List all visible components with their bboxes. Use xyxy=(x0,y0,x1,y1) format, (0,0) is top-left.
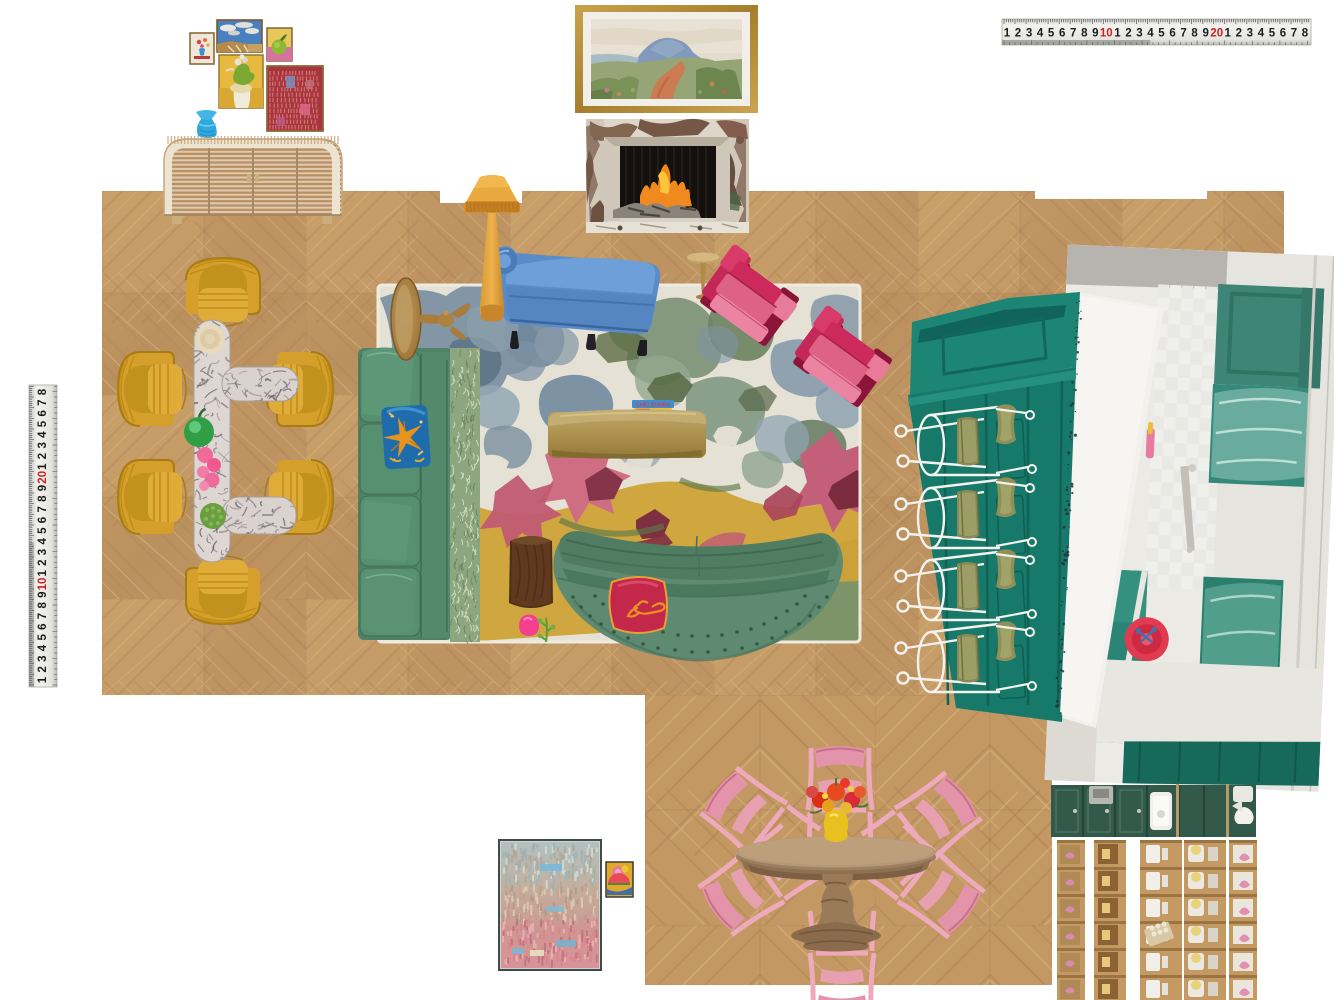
svg-text:9: 9 xyxy=(37,591,49,597)
svg-text:7: 7 xyxy=(37,613,49,619)
svg-text:6: 6 xyxy=(1280,28,1286,40)
svg-text:2: 2 xyxy=(37,559,49,565)
svg-text:5: 5 xyxy=(1158,28,1165,40)
svg-text:4: 4 xyxy=(37,431,49,438)
svg-text:4: 4 xyxy=(37,538,49,545)
svg-text:8: 8 xyxy=(1191,28,1198,40)
svg-text:8: 8 xyxy=(1081,28,1088,40)
svg-text:1: 1 xyxy=(1004,28,1011,40)
svg-text:2: 2 xyxy=(37,666,49,672)
svg-text:7: 7 xyxy=(37,399,49,405)
svg-text:8: 8 xyxy=(1302,28,1309,40)
svg-text:4: 4 xyxy=(37,644,49,651)
svg-text:3: 3 xyxy=(37,442,49,448)
svg-text:5: 5 xyxy=(37,634,49,641)
svg-text:2: 2 xyxy=(1236,28,1242,40)
svg-text:5: 5 xyxy=(37,527,49,534)
svg-text:1: 1 xyxy=(37,570,49,577)
svg-text:3: 3 xyxy=(37,549,49,555)
svg-text:CHIC STAIRS: CHIC STAIRS xyxy=(636,402,670,408)
svg-text:20: 20 xyxy=(1210,28,1223,40)
svg-text:9: 9 xyxy=(37,485,49,491)
svg-text:4: 4 xyxy=(1037,28,1044,40)
svg-text:5: 5 xyxy=(1048,28,1055,40)
svg-text:2: 2 xyxy=(1015,28,1021,40)
svg-text:3: 3 xyxy=(1247,28,1253,40)
svg-text:1: 1 xyxy=(1114,28,1121,40)
svg-text:5: 5 xyxy=(37,420,49,427)
svg-text:4: 4 xyxy=(1147,28,1154,40)
svg-text:8: 8 xyxy=(37,495,49,502)
svg-text:1: 1 xyxy=(1224,28,1231,40)
svg-text:7: 7 xyxy=(1180,28,1186,40)
svg-text:4: 4 xyxy=(1258,28,1265,40)
svg-text:6: 6 xyxy=(1059,28,1065,40)
svg-text:6: 6 xyxy=(37,410,49,416)
svg-text:6: 6 xyxy=(1169,28,1175,40)
svg-text:9: 9 xyxy=(1202,28,1208,40)
svg-text:8: 8 xyxy=(37,388,49,395)
svg-text:9: 9 xyxy=(1092,28,1098,40)
svg-text:6: 6 xyxy=(37,623,49,629)
svg-text:2: 2 xyxy=(1125,28,1131,40)
svg-text:3: 3 xyxy=(37,655,49,661)
svg-text:7: 7 xyxy=(1291,28,1297,40)
svg-text:10: 10 xyxy=(1100,28,1113,40)
svg-text:7: 7 xyxy=(37,506,49,512)
svg-text:2: 2 xyxy=(37,453,49,459)
svg-text:20: 20 xyxy=(37,471,49,484)
svg-text:10: 10 xyxy=(37,578,49,591)
svg-text:3: 3 xyxy=(1136,28,1142,40)
svg-text:5: 5 xyxy=(1269,28,1276,40)
svg-text:1: 1 xyxy=(37,463,49,470)
svg-text:1: 1 xyxy=(37,676,49,683)
svg-text:6: 6 xyxy=(37,517,49,523)
svg-text:8: 8 xyxy=(37,602,49,609)
svg-text:3: 3 xyxy=(1026,28,1032,40)
svg-text:7: 7 xyxy=(1070,28,1076,40)
